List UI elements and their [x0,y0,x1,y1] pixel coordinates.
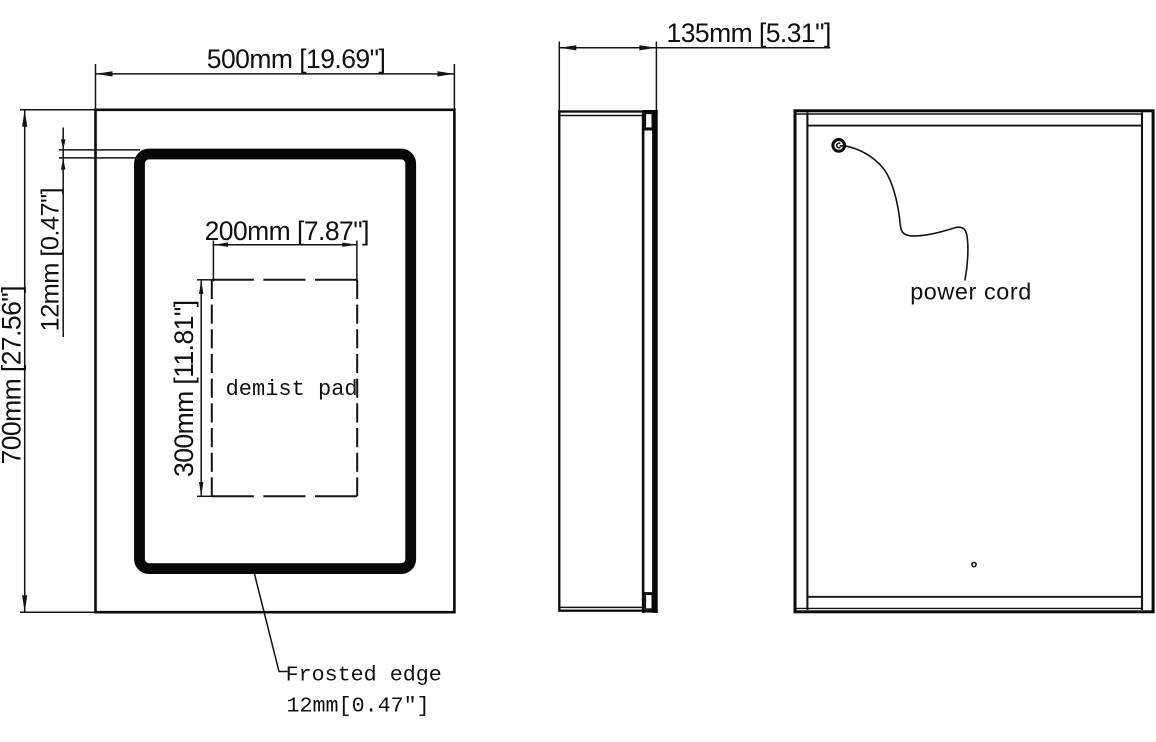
svg-text:power cord: power cord [910,279,1032,305]
svg-text:135mm [5.31"]: 135mm [5.31"] [667,18,831,48]
svg-text:demist pad: demist pad [226,377,358,402]
svg-text:12mm [0.47"]: 12mm [0.47"] [36,188,64,332]
svg-text:200mm [7.87"]: 200mm [7.87"] [205,216,369,246]
svg-text:500mm [19.69"]: 500mm [19.69"] [207,44,385,74]
svg-text:12mm[0.47″]: 12mm[0.47″] [287,693,430,718]
svg-text:300mm [11.81"]: 300mm [11.81"] [169,300,199,477]
svg-text:700mm [27.56"]: 700mm [27.56"] [0,286,26,464]
svg-text:Frosted edge: Frosted edge [286,662,442,687]
